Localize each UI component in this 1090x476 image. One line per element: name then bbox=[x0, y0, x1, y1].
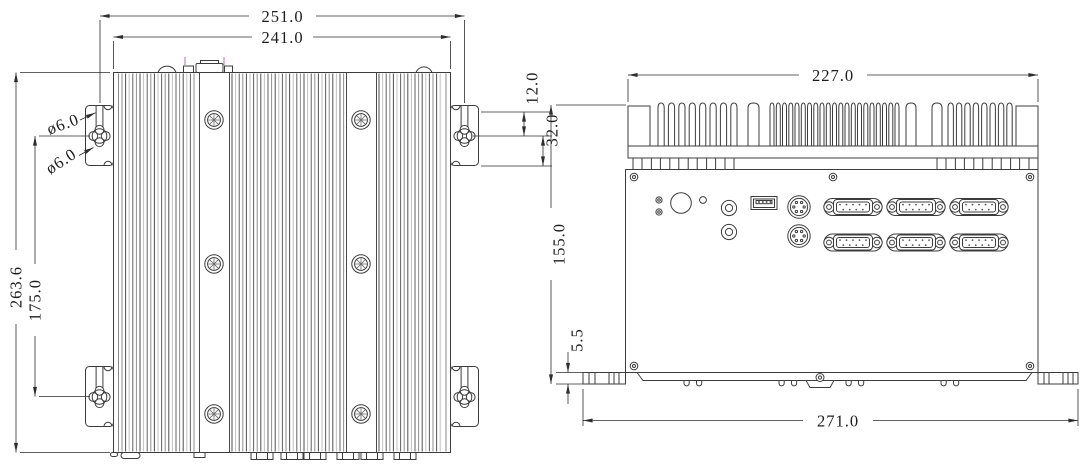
heatsink-fins-front bbox=[658, 103, 1012, 146]
bottom-feet bbox=[583, 373, 1078, 388]
heatsink-end-block bbox=[1016, 106, 1038, 146]
screw bbox=[205, 405, 223, 423]
mounting-bracket bbox=[451, 106, 479, 166]
dim-hole-dia-upper: ø6.0 bbox=[44, 109, 81, 138]
dim-width-total: 271.0 bbox=[817, 412, 859, 431]
usb-footprint bbox=[121, 453, 140, 459]
dim-width-overall: 251.0 bbox=[261, 7, 303, 26]
drawing-canvas: 251.0 241.0 263.6 175.0 ø6.0 ø6.0 12.0 3… bbox=[0, 0, 1090, 476]
serial-port-footprint bbox=[304, 453, 326, 460]
serial-port-db9 bbox=[887, 234, 945, 251]
dome-bump bbox=[158, 66, 176, 72]
serial-port-footprint bbox=[251, 453, 273, 460]
side-tab bbox=[184, 66, 194, 73]
heatsink-base bbox=[628, 146, 1038, 158]
serial-port-db9 bbox=[824, 234, 882, 251]
serial-port-footprint bbox=[281, 453, 303, 460]
dim-height-overall: 263.6 bbox=[7, 266, 26, 308]
serial-port-db9 bbox=[887, 199, 945, 216]
screw bbox=[205, 111, 223, 129]
bottom-edge-connectors bbox=[111, 453, 417, 460]
dim-hole-span: 175.0 bbox=[26, 279, 45, 321]
top-edge-connectors bbox=[158, 57, 432, 73]
mounting-bracket bbox=[451, 367, 479, 427]
screw bbox=[205, 255, 223, 273]
dim-hole-dia-lower: ø6.0 bbox=[42, 144, 80, 178]
dim-bracket-12: 12.0 bbox=[523, 72, 542, 105]
small-port-footprint bbox=[194, 453, 205, 458]
screw bbox=[352, 111, 370, 129]
ground-lug-hole bbox=[816, 374, 824, 382]
dim-height-total: 155.0 bbox=[550, 223, 569, 265]
technical-drawing: 251.0 241.0 263.6 175.0 ø6.0 ø6.0 12.0 3… bbox=[0, 0, 1090, 476]
top-view: 251.0 241.0 263.6 175.0 ø6.0 ø6.0 12.0 3… bbox=[7, 7, 562, 460]
screw bbox=[352, 405, 370, 423]
dim-width-body: 241.0 bbox=[261, 28, 303, 47]
db9-footprint-top bbox=[196, 64, 223, 73]
bottom-strip bbox=[637, 373, 1032, 381]
serial-port-footprint bbox=[361, 453, 383, 460]
serial-port-db9 bbox=[950, 199, 1008, 216]
mounting-bracket bbox=[86, 106, 114, 166]
small-port-footprint bbox=[111, 453, 118, 457]
serial-port-footprint bbox=[337, 453, 359, 460]
base-tabs bbox=[633, 158, 1038, 170]
screw bbox=[352, 255, 370, 273]
heatsink-profile bbox=[628, 103, 1038, 170]
heatsink-end-block bbox=[628, 106, 650, 146]
dome-bump bbox=[416, 67, 432, 73]
serial-port-db9 bbox=[950, 234, 1008, 251]
front-view: 227.0 155.0 5.5 271.0 bbox=[542, 66, 1078, 431]
serial-port-footprint bbox=[394, 453, 416, 460]
dim-foot-height: 5.5 bbox=[568, 328, 587, 352]
side-tab bbox=[225, 66, 233, 73]
dim-heatsink-width: 227.0 bbox=[812, 66, 854, 85]
dim-bracket-32: 32.0 bbox=[543, 114, 562, 147]
serial-port-db9 bbox=[824, 199, 882, 216]
